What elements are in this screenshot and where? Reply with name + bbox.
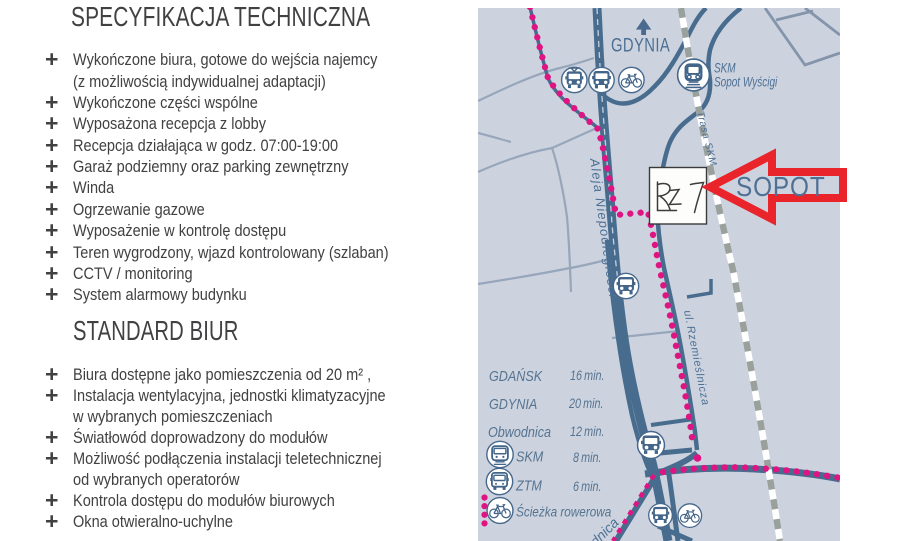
svg-text:8 min.: 8 min. [573, 450, 602, 465]
svg-text:ZTM: ZTM [515, 476, 542, 493]
svg-text:SKM: SKM [516, 447, 544, 464]
svg-text:Obwodnica: Obwodnica [488, 423, 551, 440]
svg-text:GDYNIA: GDYNIA [489, 395, 537, 412]
svg-text:20 min.: 20 min. [568, 396, 603, 411]
svg-text:GDAŃSK: GDAŃSK [489, 367, 543, 384]
svg-text:GDYNIA: GDYNIA [611, 35, 670, 56]
svg-text:Ścieżka rowerowa: Ścieżka rowerowa [516, 504, 611, 520]
svg-text:SOPOT: SOPOT [736, 170, 826, 202]
svg-text:6 min.: 6 min. [573, 479, 602, 494]
svg-text:12 min.: 12 min. [570, 424, 605, 439]
svg-text:Sopot Wyścigi: Sopot Wyścigi [714, 74, 778, 90]
svg-text:16 min.: 16 min. [570, 368, 605, 383]
